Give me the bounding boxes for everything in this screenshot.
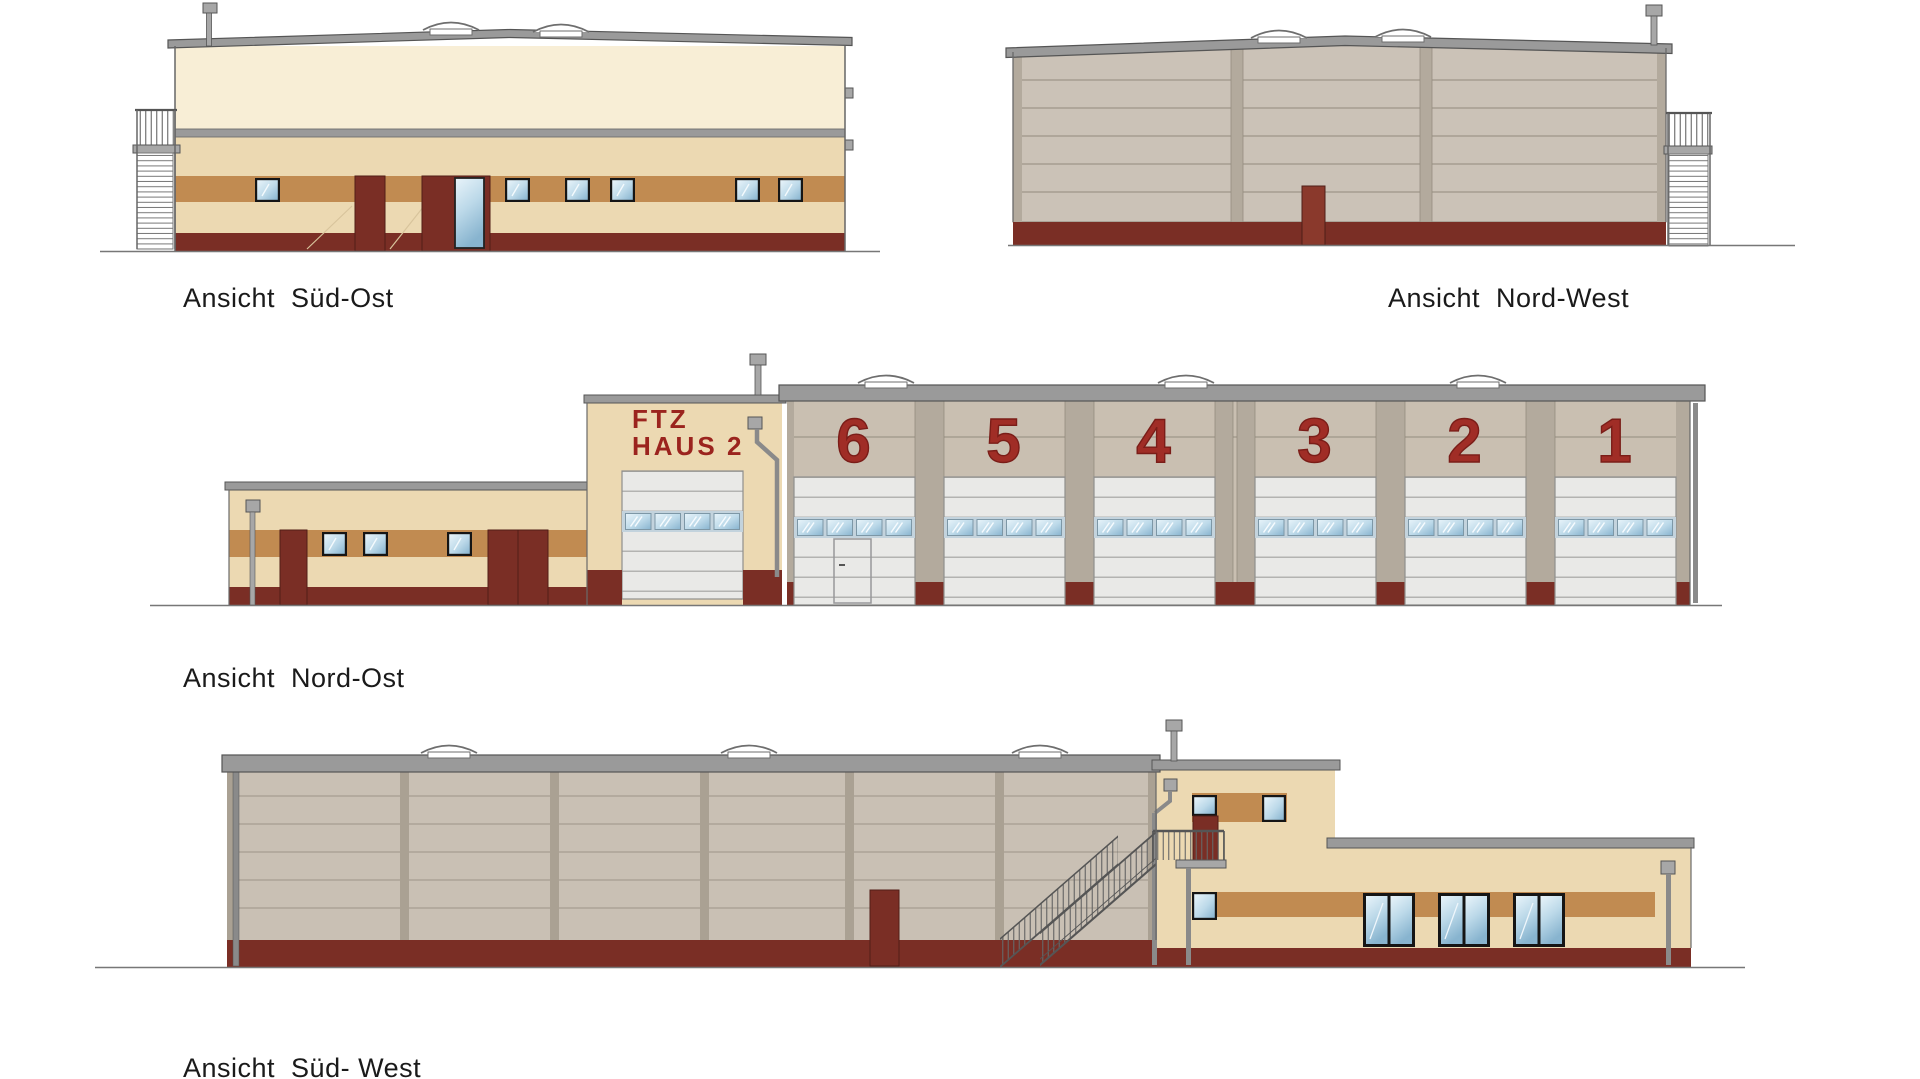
roof-vent <box>1450 376 1506 389</box>
view-label-sued-west: Ansicht Süd- West <box>183 1053 421 1079</box>
downspout <box>1693 403 1698 603</box>
bay-number-2: 2 <box>1447 407 1483 476</box>
window-pair <box>1513 893 1565 947</box>
door-solid <box>280 530 307 605</box>
annex <box>1156 767 1691 967</box>
vehicle-hall-rear <box>227 772 1156 940</box>
view-label-sued-ost: Ansicht Süd-Ost <box>183 283 394 314</box>
plinth-annex <box>1156 948 1691 967</box>
garage-door-1 <box>1555 477 1676 605</box>
window-pair <box>1363 893 1415 947</box>
bay-number-5: 5 <box>986 407 1022 476</box>
roof-vent <box>1012 746 1068 759</box>
elevation-drawing-sheet: FTZ HAUS 2 <box>0 0 1920 1079</box>
stair-post <box>1186 868 1191 965</box>
annex-lower-coping <box>1327 838 1694 848</box>
window-pair <box>1438 893 1490 947</box>
bay-number-4: 4 <box>1136 407 1172 476</box>
building-sued-ost <box>100 3 880 252</box>
plinth <box>1013 222 1666 245</box>
ftz-sign-line1: FTZ <box>632 404 689 434</box>
coping <box>584 395 786 403</box>
bay-number-1: 1 <box>1597 407 1633 476</box>
facade-band-ground <box>1192 892 1655 917</box>
entrance-door-glass <box>455 178 484 248</box>
window <box>610 178 635 202</box>
plinth <box>175 233 845 251</box>
garage-door-2 <box>1405 477 1526 605</box>
panel-wall <box>1013 45 1666 222</box>
chimney <box>1166 720 1182 761</box>
elevation-nord-ost: FTZ HAUS 2 <box>140 345 1740 615</box>
panel-wall <box>227 772 1156 940</box>
chimney <box>750 354 766 395</box>
window-upper-left <box>1192 795 1217 816</box>
wall-bracket <box>845 88 853 98</box>
external-stair <box>1664 113 1712 246</box>
pilaster <box>1231 46 1243 222</box>
garage-door-haus2 <box>622 471 743 599</box>
window <box>363 532 388 556</box>
ftz-sign-number: 2 <box>727 431 744 461</box>
pilaster <box>1526 401 1555 605</box>
door-solid <box>355 176 385 251</box>
window <box>447 532 472 556</box>
window <box>255 178 280 202</box>
chimney <box>1646 5 1662 45</box>
pilaster <box>400 772 409 940</box>
window-upper-right <box>1262 795 1286 822</box>
corner-column <box>1657 48 1666 222</box>
pilaster <box>1215 401 1233 605</box>
coping <box>225 482 591 490</box>
elevation-sued-west <box>90 695 1755 990</box>
window <box>565 178 590 202</box>
roof-vent <box>858 376 914 389</box>
landing <box>1176 860 1226 868</box>
ftz-sign-word: HAUS <box>632 431 718 461</box>
corner-column <box>1676 401 1690 605</box>
hall-door <box>870 890 899 966</box>
pilaster <box>550 772 559 940</box>
roof-vent <box>721 746 777 759</box>
roof <box>168 30 852 49</box>
pilaster <box>995 772 1004 940</box>
bay-number-6: 6 <box>836 407 872 476</box>
plinth <box>587 570 622 605</box>
pilaster <box>915 401 944 605</box>
view-label-nord-ost: Ansicht Nord-Ost <box>183 663 405 694</box>
floor-band <box>175 129 845 137</box>
garage-door-6 <box>794 477 915 605</box>
pilaster <box>1420 45 1432 222</box>
window <box>322 532 347 556</box>
elevation-sued-ost <box>90 0 900 315</box>
roof-vent <box>1251 31 1307 44</box>
garage-door-5 <box>944 477 1065 605</box>
corner-column <box>787 401 794 605</box>
garage-door-3 <box>1255 477 1376 605</box>
window-ground-left <box>1192 892 1217 920</box>
roof-vent <box>533 25 589 38</box>
roof-vent <box>423 23 479 36</box>
window <box>735 178 760 202</box>
wall-bracket <box>845 140 853 150</box>
corner-column <box>1013 52 1022 222</box>
roof-vent <box>421 746 477 759</box>
door <box>1302 186 1325 245</box>
view-label-nord-west: Ansicht Nord-West <box>1388 283 1629 314</box>
elevation-nord-west <box>985 0 1800 315</box>
roof <box>779 385 1705 401</box>
building-nord-west <box>1006 5 1795 246</box>
pilaster <box>1237 401 1255 605</box>
roof-vent <box>1375 30 1431 43</box>
external-stair <box>133 110 180 249</box>
pilaster <box>700 772 709 940</box>
roof-vent <box>1158 376 1214 389</box>
low-wing <box>225 482 591 605</box>
pilaster <box>845 772 854 940</box>
bay-number-3: 3 <box>1297 407 1333 476</box>
vehicle-hall: 6 5 4 3 2 1 <box>779 376 1705 606</box>
pilaster <box>1065 401 1094 605</box>
annex-upper-coping <box>1152 760 1340 770</box>
garage-door-4 <box>1094 477 1215 605</box>
landing-railing <box>1153 832 1224 860</box>
ftz-tower: FTZ HAUS 2 <box>584 354 786 605</box>
pilaster <box>1376 401 1405 605</box>
downspout <box>233 772 239 966</box>
window <box>778 178 803 202</box>
window <box>505 178 530 202</box>
